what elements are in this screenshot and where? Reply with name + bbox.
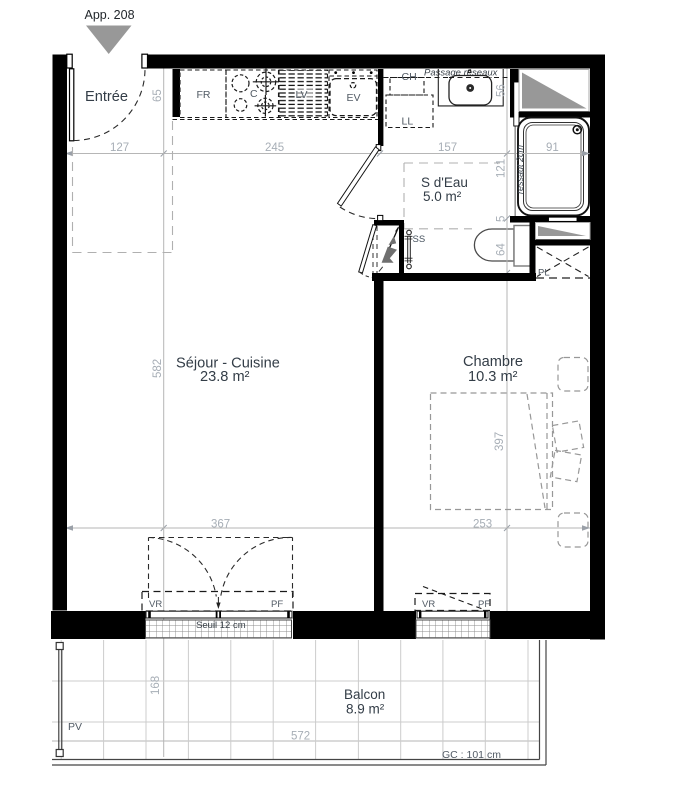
svg-text:Balcon: Balcon bbox=[344, 687, 385, 702]
svg-text:EV: EV bbox=[347, 92, 361, 104]
svg-text:C: C bbox=[250, 88, 258, 100]
svg-text:PF: PF bbox=[271, 599, 283, 610]
svg-text:App. 208: App. 208 bbox=[85, 8, 135, 22]
svg-text:5.0 m²: 5.0 m² bbox=[423, 189, 462, 204]
svg-text:56: 56 bbox=[496, 84, 508, 97]
svg-text:PF: PF bbox=[478, 599, 490, 610]
svg-text:168: 168 bbox=[150, 676, 162, 695]
svg-text:397: 397 bbox=[494, 432, 506, 451]
svg-text:127: 127 bbox=[110, 142, 129, 154]
svg-text:23.8 m²: 23.8 m² bbox=[200, 369, 250, 385]
svg-text:Chambre: Chambre bbox=[463, 354, 523, 370]
svg-text:Entrée: Entrée bbox=[85, 89, 128, 105]
svg-text:8.9 m²: 8.9 m² bbox=[346, 702, 385, 717]
svg-text:GC : 101 cm: GC : 101 cm bbox=[442, 749, 501, 761]
svg-text:64: 64 bbox=[496, 243, 508, 256]
svg-text:10.3 m²: 10.3 m² bbox=[468, 369, 518, 385]
svg-text:S d'Eau: S d'Eau bbox=[421, 175, 468, 190]
svg-text:253: 253 bbox=[473, 519, 492, 531]
svg-text:LL: LL bbox=[402, 116, 414, 128]
svg-text:65: 65 bbox=[152, 89, 164, 102]
svg-text:LV: LV bbox=[296, 89, 308, 101]
svg-text:582: 582 bbox=[152, 359, 164, 378]
svg-text:5: 5 bbox=[496, 216, 508, 222]
svg-text:VR: VR bbox=[422, 599, 435, 610]
svg-text:91: 91 bbox=[546, 142, 559, 154]
svg-text:VR: VR bbox=[149, 599, 162, 610]
svg-text:CH: CH bbox=[402, 71, 417, 83]
svg-text:245: 245 bbox=[265, 142, 284, 154]
svg-text:PL: PL bbox=[538, 268, 550, 279]
svg-text:FR: FR bbox=[197, 89, 211, 101]
svg-text:Seuil 12 cm: Seuil 12 cm bbox=[196, 620, 246, 631]
svg-text:157: 157 bbox=[438, 142, 457, 154]
svg-text:367: 367 bbox=[211, 519, 230, 531]
svg-text:572: 572 bbox=[291, 731, 310, 743]
svg-text:121: 121 bbox=[496, 159, 508, 178]
svg-text:ressaut 2cm: ressaut 2cm bbox=[515, 144, 525, 194]
svg-text:SS: SS bbox=[413, 234, 426, 245]
svg-text:PV: PV bbox=[68, 721, 82, 733]
